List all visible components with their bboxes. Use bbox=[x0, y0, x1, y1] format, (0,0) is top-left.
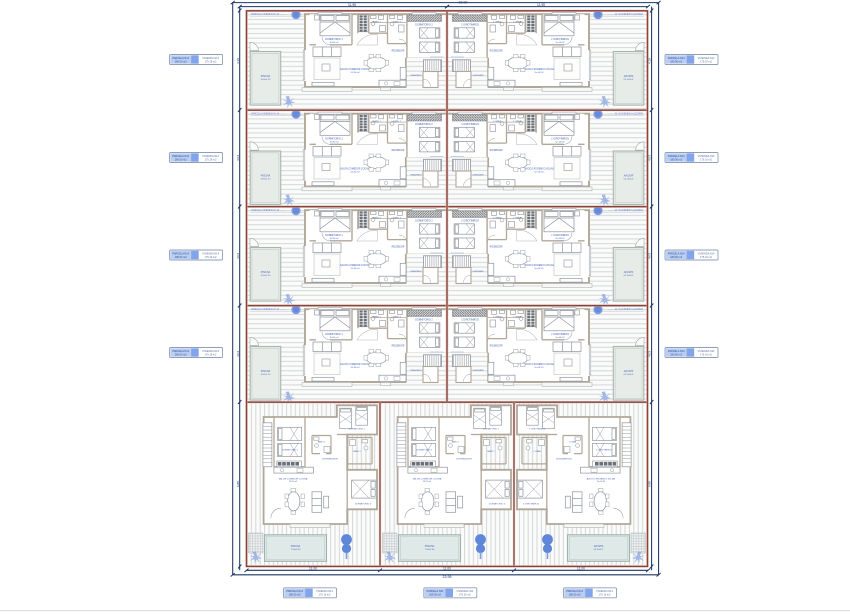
svg-text:11.95: 11.95 bbox=[348, 3, 356, 7]
svg-text:6.85: 6.85 bbox=[648, 481, 652, 487]
svg-text:11.00: 11.00 bbox=[577, 567, 585, 571]
svg-text:23.90: 23.90 bbox=[459, 1, 468, 5]
svg-text:4.15: 4.15 bbox=[648, 58, 652, 64]
svg-text:11.00: 11.00 bbox=[309, 567, 317, 571]
svg-text:4.03: 4.03 bbox=[648, 351, 652, 357]
svg-text:11.95: 11.95 bbox=[537, 3, 545, 7]
svg-text:11.00: 11.00 bbox=[443, 567, 451, 571]
svg-text:23.95: 23.95 bbox=[443, 575, 452, 579]
svg-text:4.03: 4.03 bbox=[648, 155, 652, 161]
svg-text:4.03: 4.03 bbox=[648, 253, 652, 259]
